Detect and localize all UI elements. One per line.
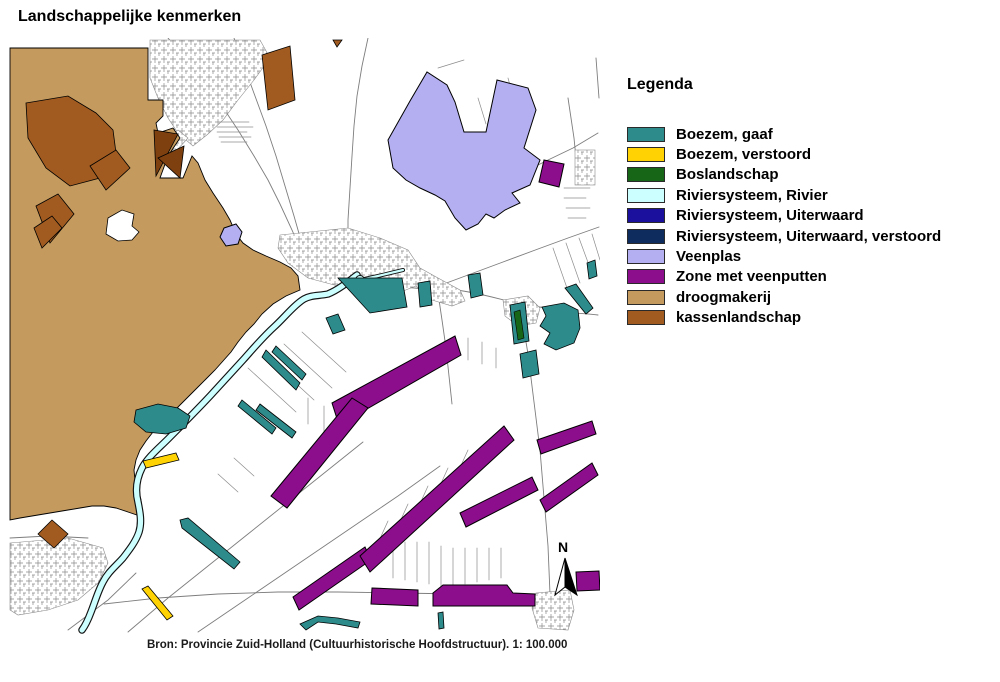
page-title: Landschappelijke kenmerken xyxy=(18,8,241,26)
legend-swatch xyxy=(627,269,665,284)
legend-item: Boezem, verstoord xyxy=(627,144,995,164)
legend: Legenda Boezem, gaafBoezem, verstoordBos… xyxy=(627,76,995,328)
legend-swatch xyxy=(627,147,665,162)
legend-items: Boezem, gaafBoezem, verstoordBoslandscha… xyxy=(627,124,995,328)
north-label: N xyxy=(558,539,568,555)
north-arrow: N xyxy=(555,539,577,595)
legend-item: Zone met veenputten xyxy=(627,267,995,287)
legend-item-label: Boslandschap xyxy=(676,166,779,183)
legend-swatch xyxy=(627,188,665,203)
legend-item-label: Riviersysteem, Uiterwaard xyxy=(676,207,864,224)
legend-item-label: Zone met veenputten xyxy=(676,268,827,285)
legend-swatch xyxy=(627,290,665,305)
source-caption: Bron: Provincie Zuid-Holland (Cultuurhis… xyxy=(147,639,567,651)
page: Landschappelijke kenmerken xyxy=(0,0,1000,682)
legend-item: droogmakerij xyxy=(627,287,995,307)
zone-met-veenputten-layer xyxy=(271,160,600,610)
map: N xyxy=(8,38,600,634)
legend-item: Riviersysteem, Uiterwaard, verstoord xyxy=(627,226,995,246)
map-canvas: N xyxy=(8,38,600,634)
legend-item-label: kassenlandschap xyxy=(676,309,801,326)
legend-item-label: Riviersysteem, Rivier xyxy=(676,187,828,204)
boezem-verstoord-layer xyxy=(142,453,179,620)
legend-swatch xyxy=(627,249,665,264)
legend-item-label: Boezem, gaaf xyxy=(676,126,773,143)
legend-item: Veenplas xyxy=(627,246,995,266)
legend-item: Riviersysteem, Uiterwaard xyxy=(627,206,995,226)
legend-swatch xyxy=(627,127,665,142)
legend-swatch xyxy=(627,229,665,244)
legend-item-label: Riviersysteem, Uiterwaard, verstoord xyxy=(676,228,941,245)
legend-swatch xyxy=(627,167,665,182)
legend-swatch xyxy=(627,208,665,223)
legend-item-label: Boezem, verstoord xyxy=(676,146,811,163)
legend-item: Boslandschap xyxy=(627,165,995,185)
legend-item: kassenlandschap xyxy=(627,308,995,328)
legend-swatch xyxy=(627,310,665,325)
legend-item-label: Veenplas xyxy=(676,248,741,265)
legend-title: Legenda xyxy=(627,76,995,94)
legend-item-label: droogmakerij xyxy=(676,289,771,306)
legend-item: Riviersysteem, Rivier xyxy=(627,185,995,205)
legend-item: Boezem, gaaf xyxy=(627,124,995,144)
